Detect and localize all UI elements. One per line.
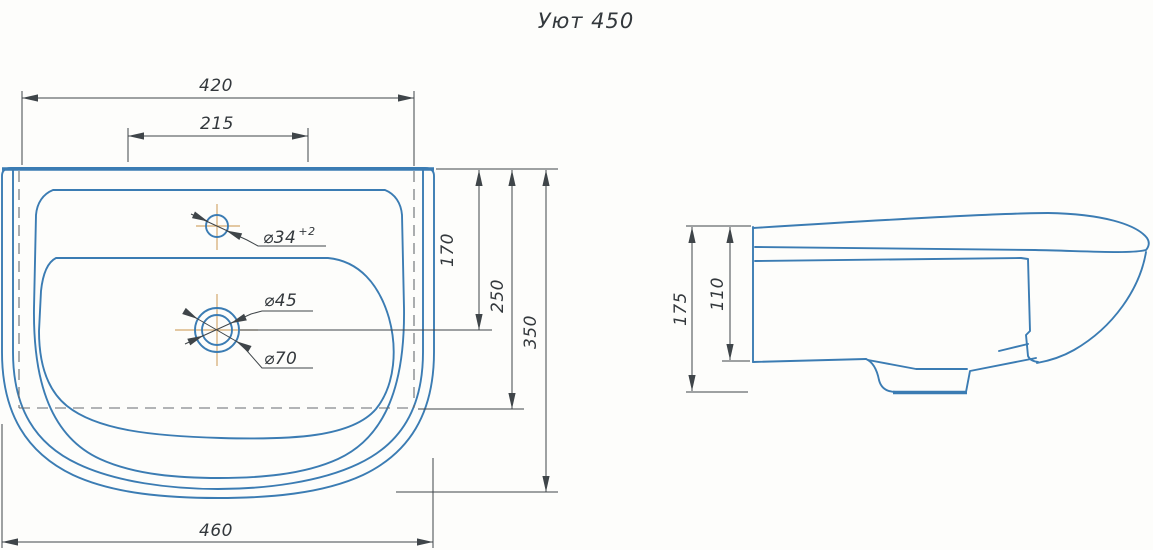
plan-view: ⌀34+2 ⌀45 ⌀70 420	[2, 76, 558, 548]
dim-250-label: 250	[488, 279, 508, 313]
faucet-leader-arrow-2	[226, 231, 238, 236]
faucet-tolerance-label: +2	[298, 225, 315, 238]
side-bottom-edge	[753, 359, 866, 362]
drawing-title: Уют 450	[538, 9, 634, 33]
dimension-350: 350	[396, 170, 558, 492]
basin-rim-path	[34, 190, 404, 478]
dim-460-label: 460	[199, 521, 233, 541]
outer-contour-path	[2, 168, 434, 498]
dim-110-label: 110	[708, 277, 728, 311]
faucet-hole: ⌀34+2	[191, 204, 326, 250]
drain-outer-diameter-label: ⌀70	[264, 349, 297, 369]
dim-175-label: 175	[671, 292, 691, 326]
faucet-diameter-label: ⌀34+2	[263, 225, 316, 248]
side-view: 175 110	[671, 213, 1149, 393]
plan-body	[2, 168, 434, 498]
dim-350-label: 350	[521, 315, 541, 349]
dim-170-label: 170	[438, 233, 458, 267]
side-front-curve-path	[1037, 252, 1146, 363]
drain-inner-diameter-label: ⌀45	[264, 291, 297, 311]
side-top-rim-path	[753, 213, 1149, 252]
side-basin-edge-path	[755, 258, 1038, 362]
faucet-leader-arrow-1	[196, 216, 208, 222]
dimension-460: 460	[2, 424, 433, 548]
dimension-110: 110	[708, 227, 750, 361]
technical-drawing-canvas: ⌀34+2 ⌀45 ⌀70 420	[0, 0, 1153, 550]
drain-trap-outline-path	[866, 358, 1036, 392]
side-body	[753, 213, 1149, 393]
drain-d70-arrow-2	[236, 341, 246, 347]
dim-215-label: 215	[200, 114, 234, 134]
drain-d70-arrow-1	[188, 313, 198, 319]
dim-420-label: 420	[199, 76, 233, 96]
dimension-215: 215	[128, 114, 308, 162]
bowl-floor-path	[39, 258, 394, 438]
